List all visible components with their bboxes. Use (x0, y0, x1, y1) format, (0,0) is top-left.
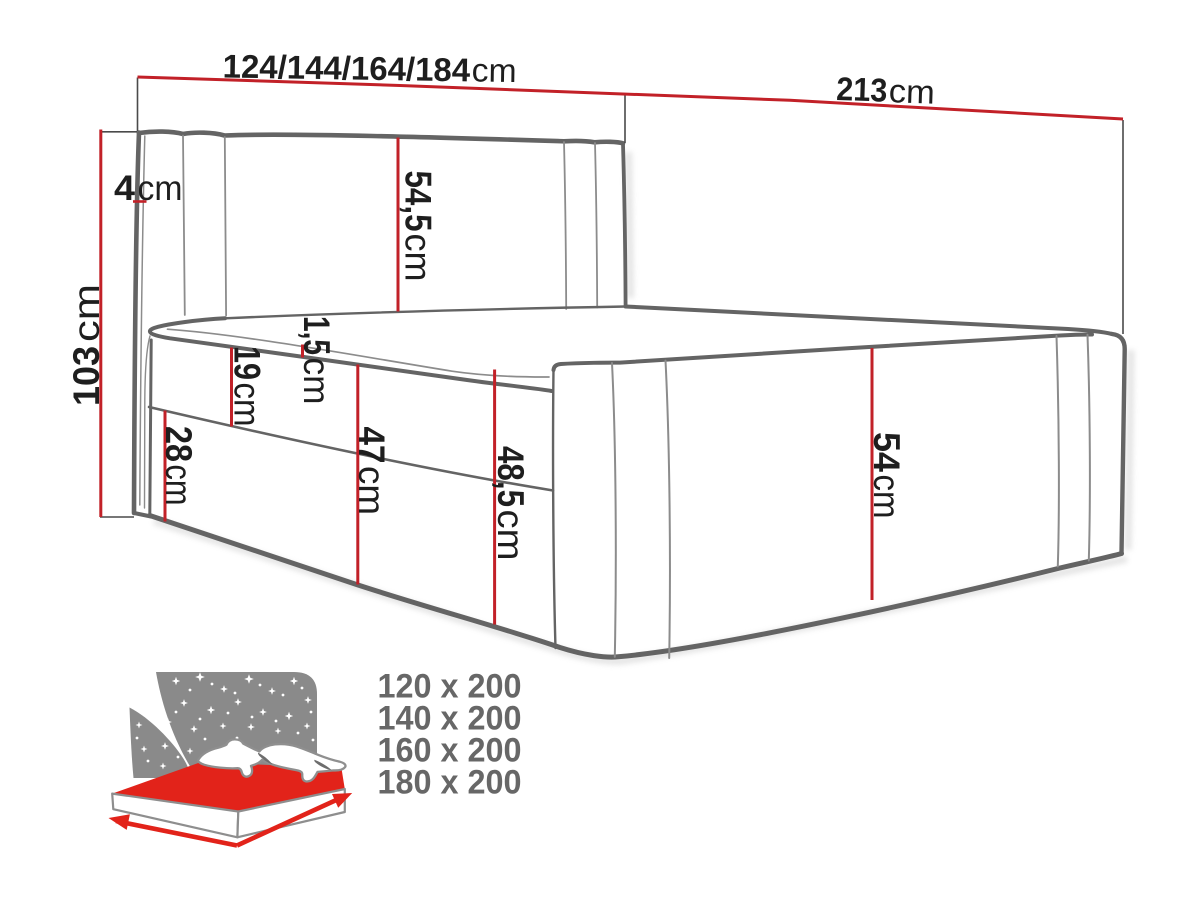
svg-text:cm: cm (490, 510, 531, 561)
svg-text:cm: cm (227, 383, 268, 427)
svg-text:54: 54 (866, 432, 907, 472)
svg-text:cm: cm (351, 466, 392, 515)
svg-text:cm: cm (888, 72, 935, 110)
svg-text:103: 103 (66, 346, 107, 406)
svg-text:cm: cm (471, 51, 517, 89)
svg-text:54,5: 54,5 (398, 171, 439, 232)
svg-text:28: 28 (158, 426, 199, 462)
svg-text:180 x 200: 180 x 200 (378, 764, 522, 802)
svg-text:cm: cm (296, 358, 337, 405)
svg-text:cm: cm (158, 465, 199, 506)
svg-text:19: 19 (227, 346, 268, 380)
svg-text:124/144/164/184: 124/144/164/184 (222, 48, 471, 89)
svg-text:cm: cm (398, 234, 439, 282)
svg-text:cm: cm (138, 169, 183, 208)
svg-text:cm: cm (66, 284, 107, 342)
svg-text:4: 4 (114, 169, 136, 208)
svg-text:1,5: 1,5 (296, 316, 337, 355)
svg-text:48,5: 48,5 (490, 446, 531, 507)
svg-text:47: 47 (351, 427, 392, 464)
svg-text:cm: cm (866, 475, 907, 519)
svg-text:213: 213 (836, 70, 888, 109)
